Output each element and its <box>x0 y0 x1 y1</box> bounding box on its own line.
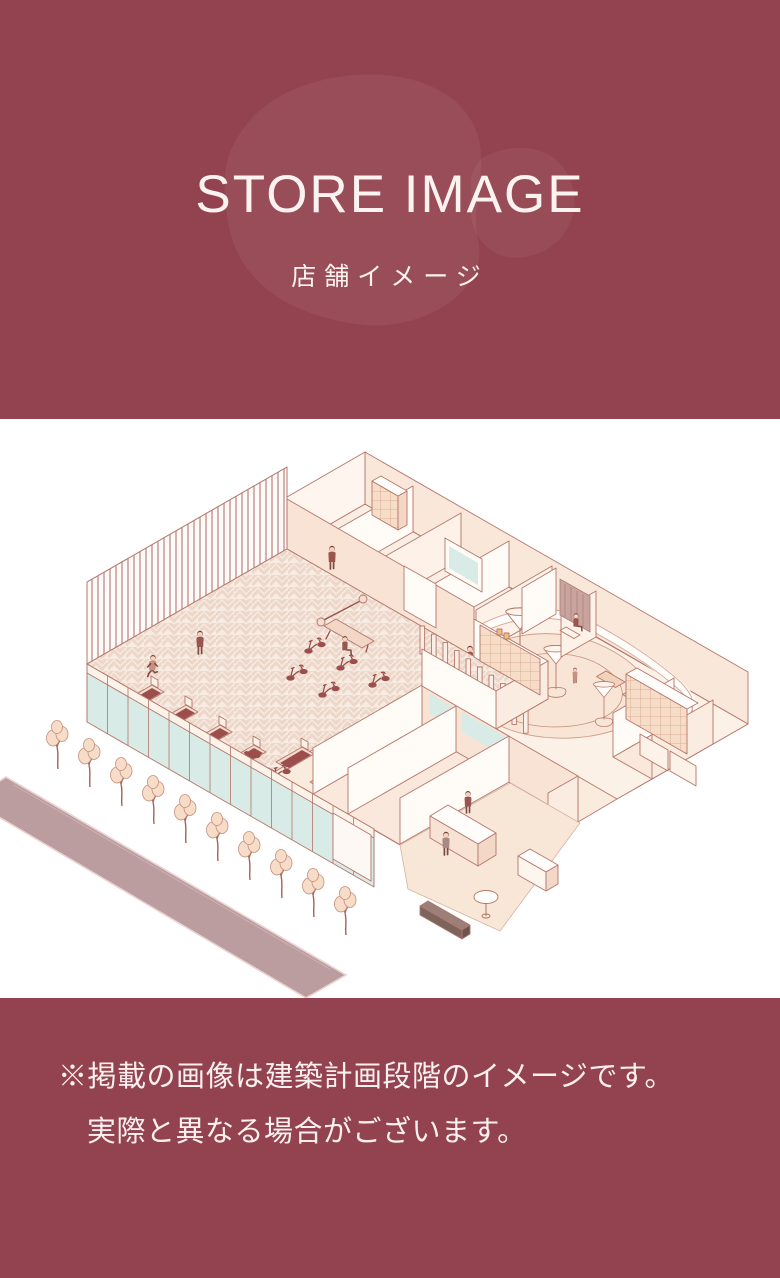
store-image-section: STORE IMAGE 店舗イメージ <box>0 0 780 1278</box>
footer-band: ※掲載の画像は建築計画段階のイメージです。 実際と異なる場合がございます。 <box>0 998 780 1278</box>
illustration-band <box>0 419 780 998</box>
header-band: STORE IMAGE 店舗イメージ <box>0 0 780 419</box>
disclaimer-line-2: 実際と異なる場合がございます。 <box>87 1105 780 1160</box>
page-title: STORE IMAGE <box>195 168 584 221</box>
disclaimer-line-1: ※掲載の画像は建築計画段階のイメージです。 <box>58 1050 780 1105</box>
page-subtitle: 店舗イメージ <box>291 265 489 290</box>
store-isometric-illustration <box>0 419 780 998</box>
